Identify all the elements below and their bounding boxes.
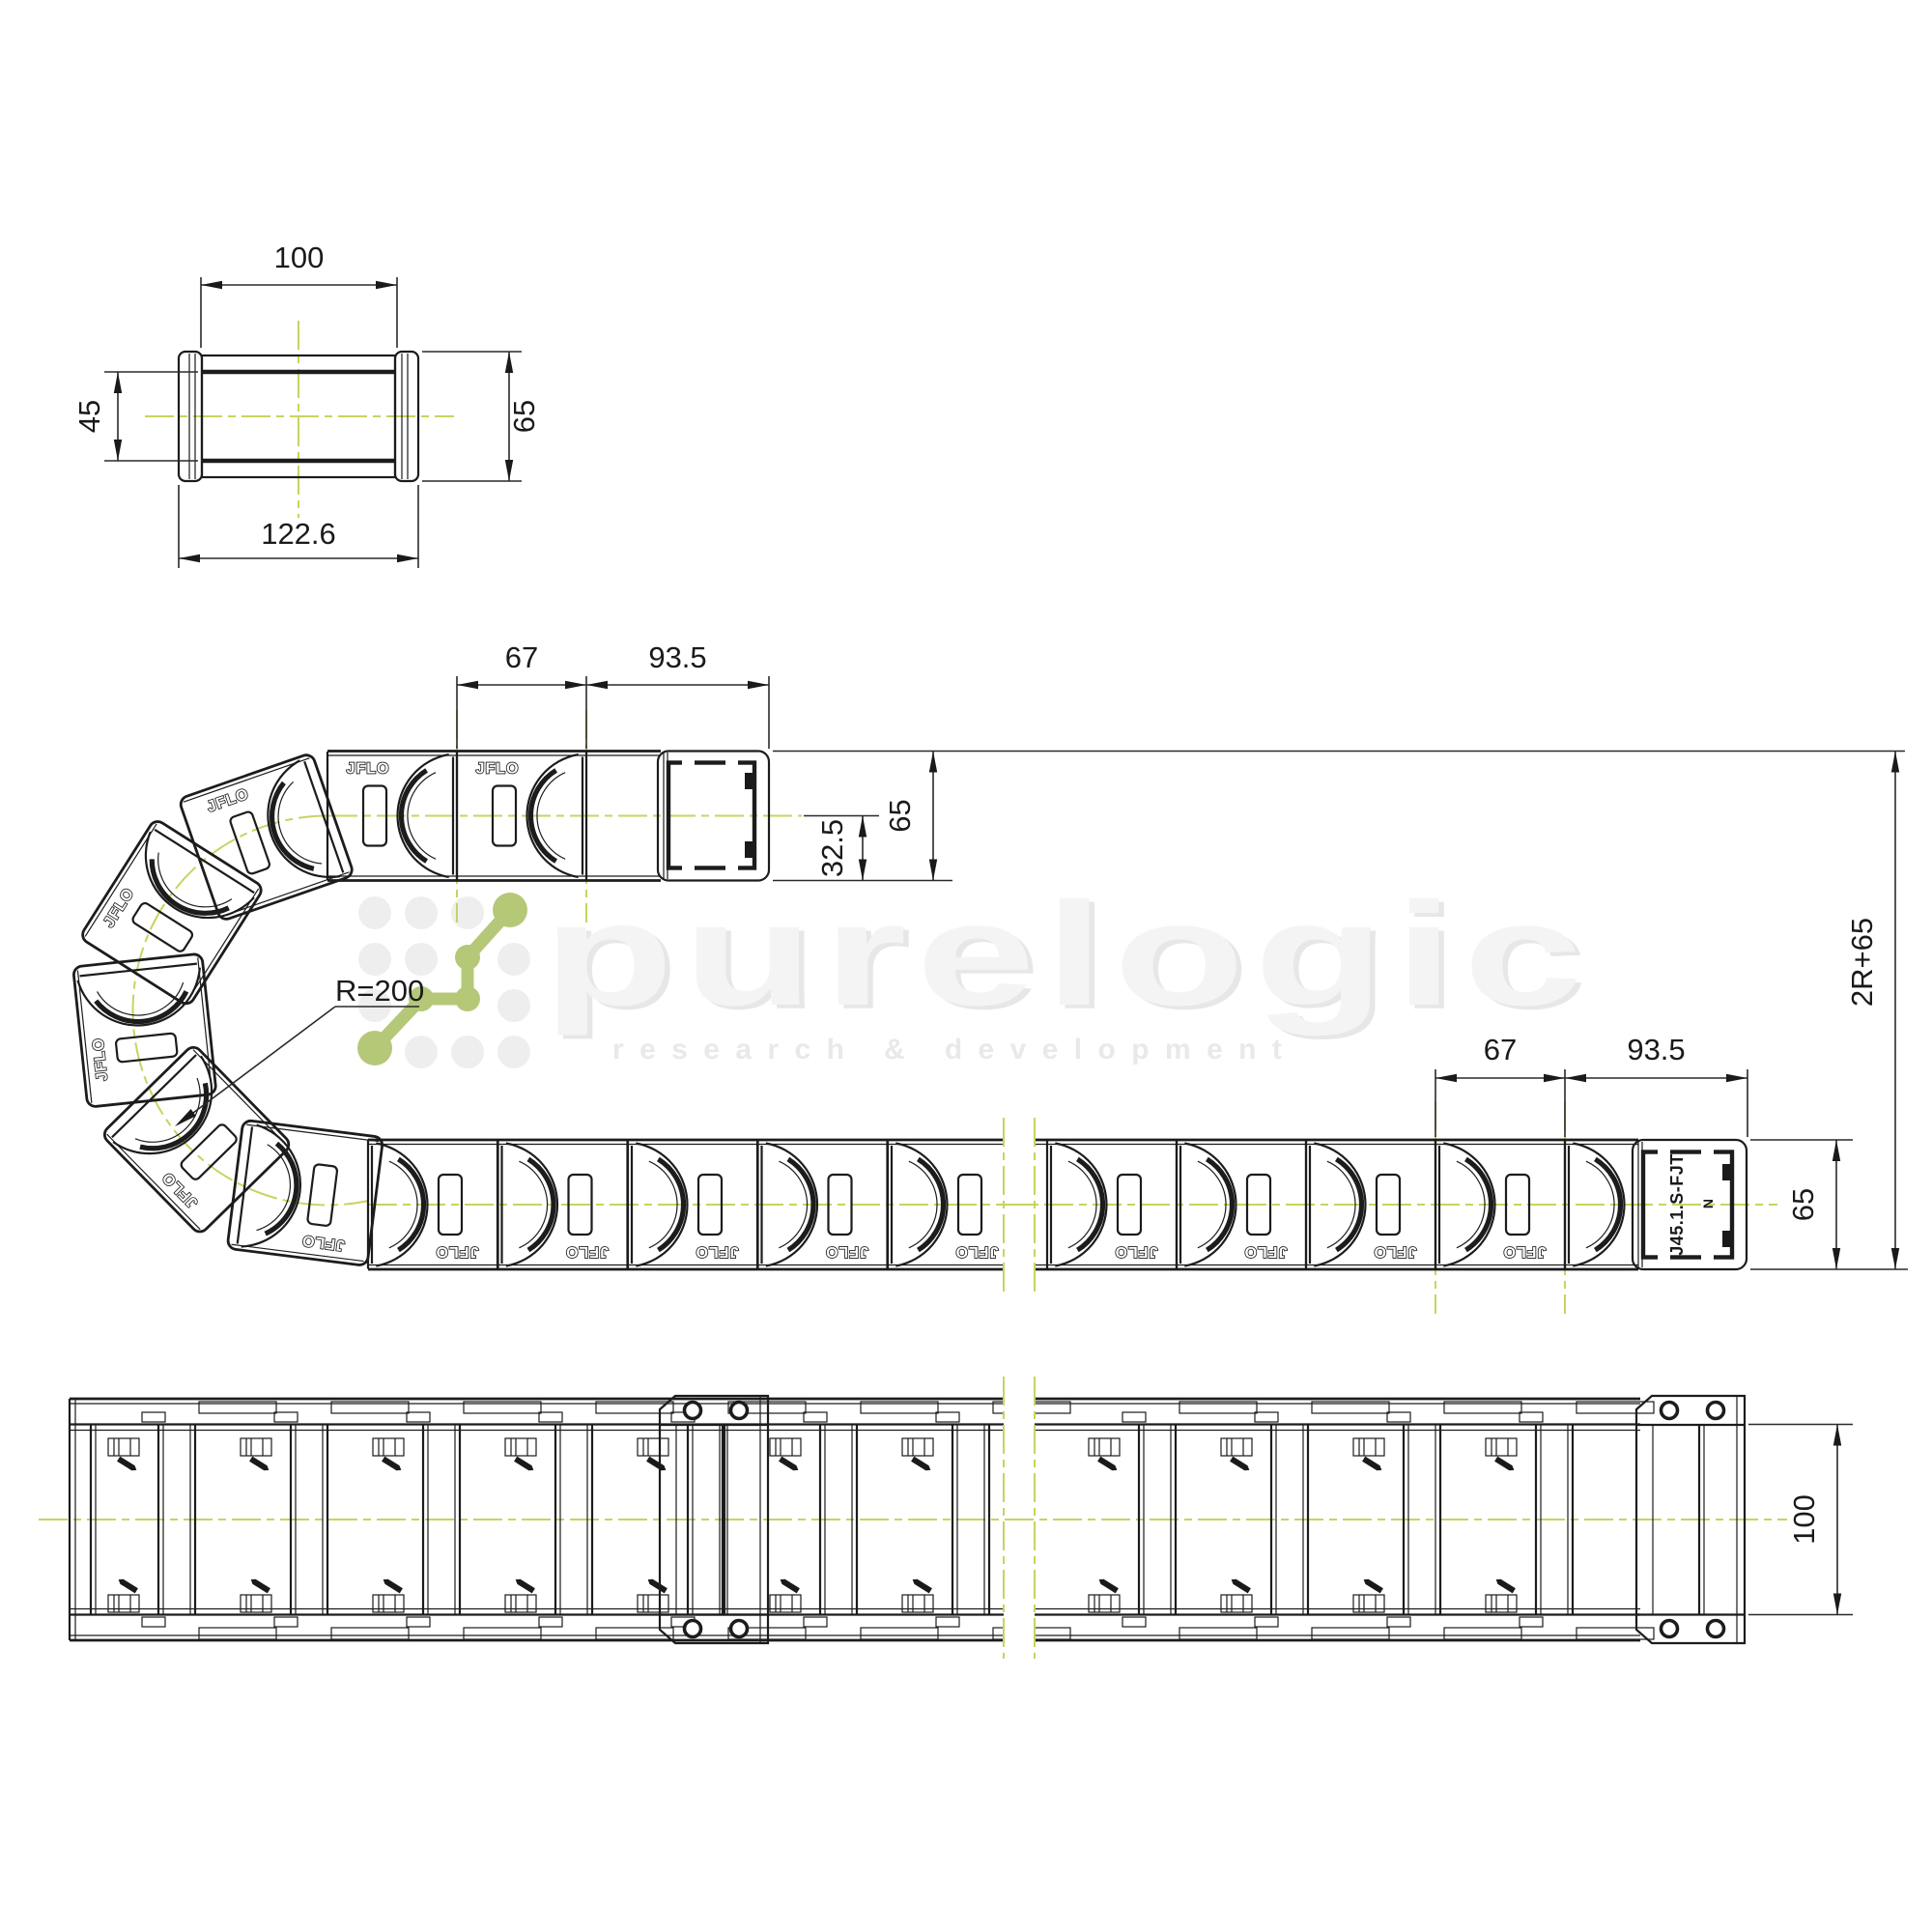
svg-text:purelogic: purelogic — [543, 872, 1592, 1037]
svg-text:65: 65 — [507, 400, 541, 433]
svg-text:32.5: 32.5 — [815, 819, 849, 877]
svg-text:45: 45 — [72, 400, 106, 433]
svg-text:N: N — [1700, 1199, 1716, 1208]
svg-text:2R+65: 2R+65 — [1845, 918, 1879, 1007]
svg-text:65: 65 — [883, 799, 917, 832]
svg-text:R=200: R=200 — [335, 974, 424, 1008]
svg-text:65: 65 — [1786, 1188, 1820, 1221]
svg-text:100: 100 — [274, 241, 325, 274]
svg-text:122.6: 122.6 — [261, 517, 336, 551]
svg-text:67: 67 — [1484, 1033, 1517, 1066]
svg-text:67: 67 — [505, 640, 538, 674]
svg-text:100: 100 — [1787, 1494, 1821, 1545]
svg-text:93.5: 93.5 — [1627, 1033, 1685, 1066]
svg-text:93.5: 93.5 — [648, 640, 706, 674]
svg-text:research & development: research & development — [612, 1034, 1297, 1065]
svg-text:J45.1.S-FJT: J45.1.S-FJT — [1667, 1153, 1687, 1256]
